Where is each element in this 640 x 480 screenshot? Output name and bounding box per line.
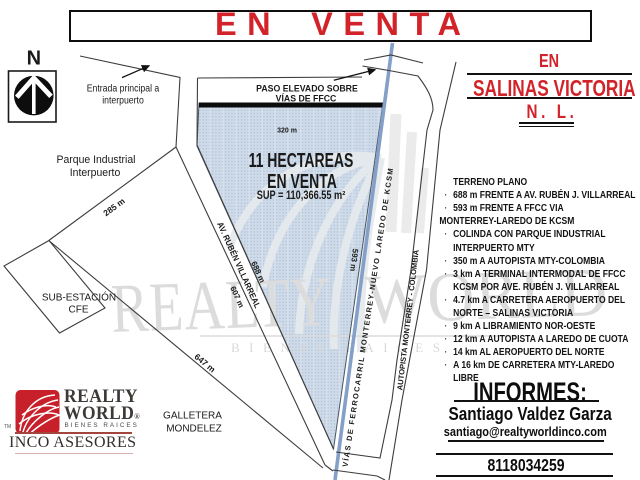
svg-text:BIENES RAICES: BIENES RAICES bbox=[231, 340, 449, 355]
svg-text:REALTY: REALTY bbox=[110, 263, 333, 348]
